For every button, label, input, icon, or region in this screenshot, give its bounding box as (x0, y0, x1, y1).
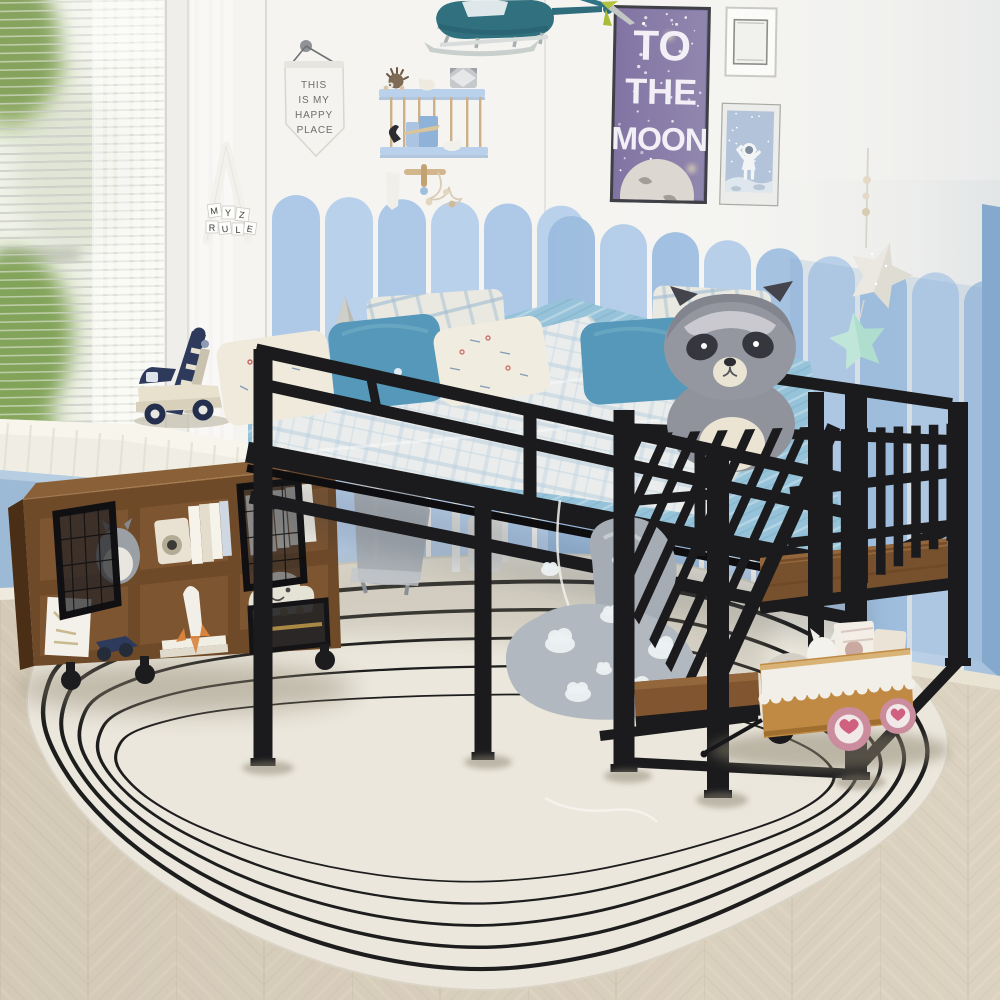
svg-text:PLACE: PLACE (297, 125, 334, 136)
svg-text:L: L (235, 225, 240, 235)
svg-text:U: U (221, 224, 229, 235)
svg-text:THIS: THIS (301, 80, 327, 91)
svg-text:THE: THE (625, 70, 698, 112)
svg-text:TO: TO (633, 21, 692, 69)
svg-text:R: R (209, 223, 216, 233)
svg-text:HAPPY: HAPPY (295, 110, 333, 121)
svg-text:IS MY: IS MY (298, 95, 329, 106)
svg-text:M: M (210, 206, 219, 217)
svg-text:MOON: MOON (611, 120, 707, 158)
svg-text:Y: Y (225, 208, 231, 218)
